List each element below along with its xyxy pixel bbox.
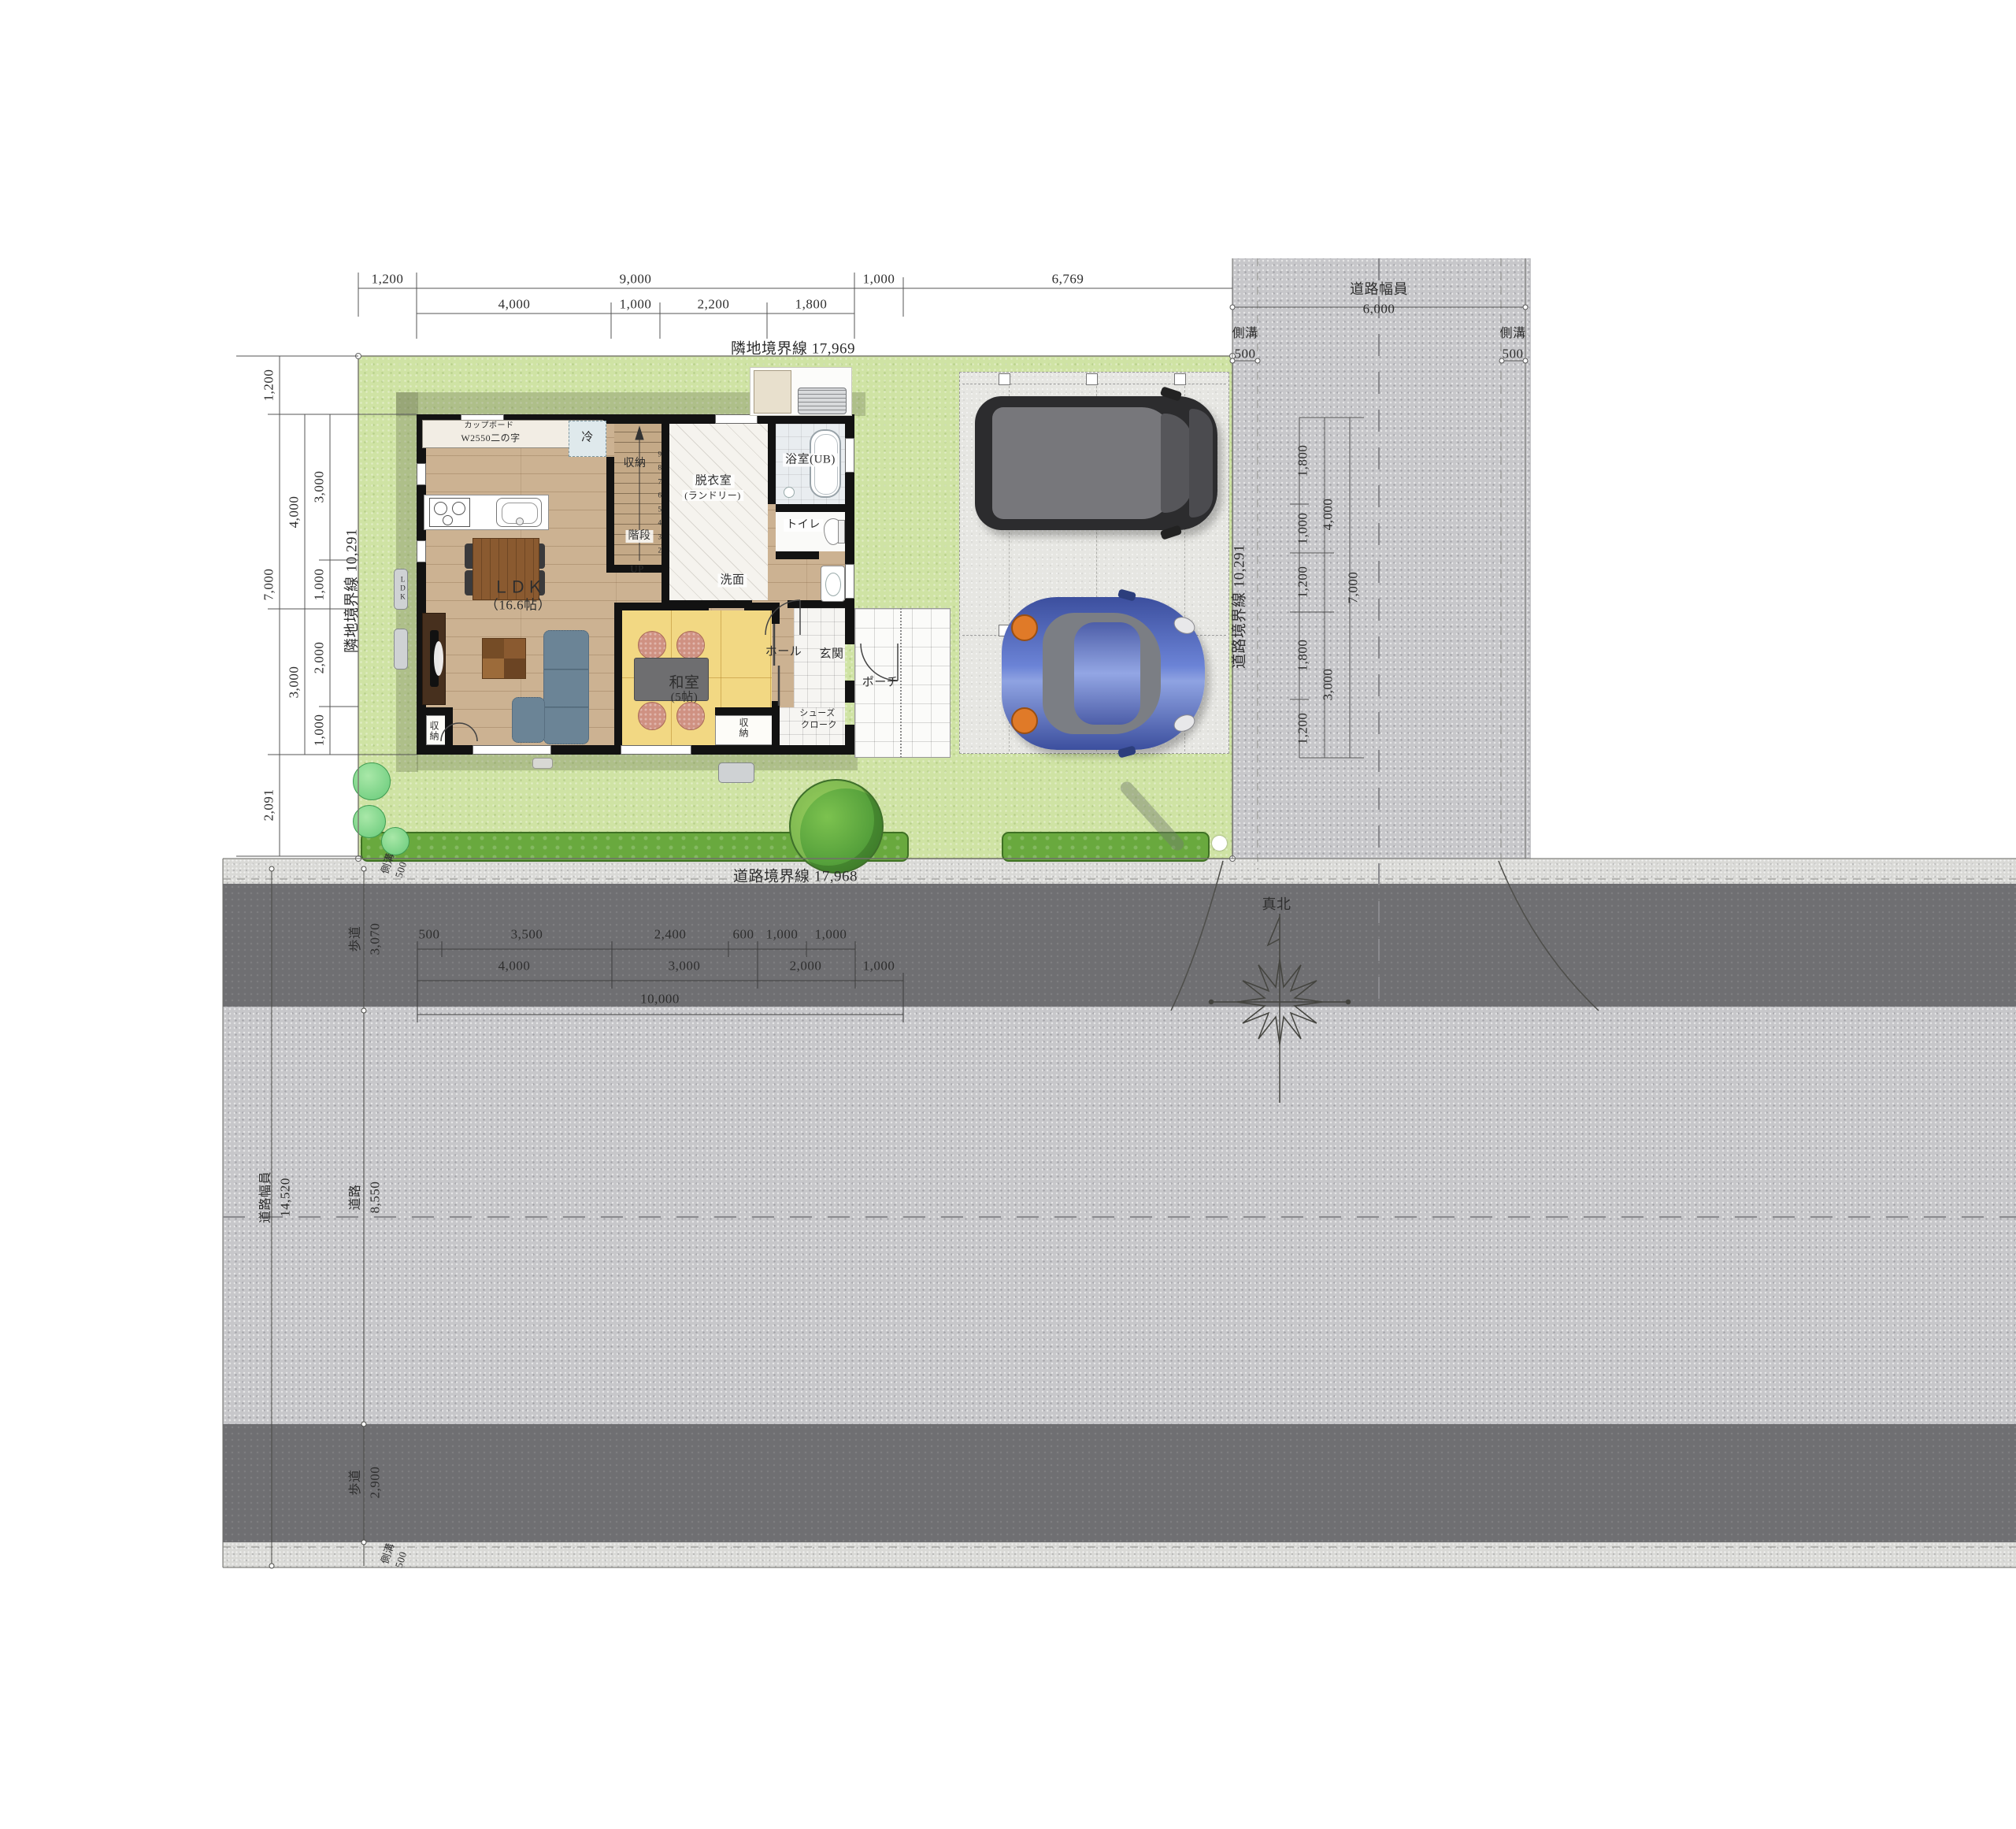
bottom-dims-label: 10,000	[640, 992, 680, 1006]
wall-closet-ldk-top	[426, 707, 453, 715]
left-dims-label: 7,000	[262, 569, 276, 601]
road-labels-label: 歩道	[350, 926, 362, 952]
left-dims-label: 2,000	[313, 642, 326, 674]
ac-outdoor-unit-washitsu	[718, 762, 754, 783]
window-wash-right	[845, 564, 854, 599]
right-dims-label: 1,800	[1296, 640, 1310, 672]
boundary-labels-label: 隣地境界線 10,291	[345, 529, 360, 653]
beetle-headlight-bottom	[1011, 707, 1038, 734]
road-gutter-top	[223, 859, 2016, 884]
water-heater-tank	[754, 370, 791, 414]
road-labels-label: 6,000	[1363, 302, 1395, 316]
top-dims-label: 4,000	[498, 298, 531, 311]
fixtures-label: 3	[658, 534, 662, 541]
fixtures-label: 収納	[739, 718, 748, 738]
fixtures-label: LDK	[399, 576, 406, 602]
tree-large	[789, 779, 884, 874]
burner	[452, 502, 465, 515]
suv-roof	[992, 407, 1173, 519]
toilet-tank	[838, 520, 845, 544]
fixtures-label: 収納	[429, 721, 439, 741]
top-dims-label: 1,800	[795, 298, 828, 311]
rooms-label: ポーチ	[862, 677, 899, 689]
road-labels-label: 側溝	[1499, 328, 1525, 340]
window-ldk-bottom	[472, 745, 551, 755]
zabuton-cushion	[676, 631, 705, 659]
zabuton-cushion	[676, 702, 705, 730]
left-dims-label: 1,200	[262, 369, 276, 402]
heatpump-unit	[798, 388, 847, 414]
top-dims-label: 6,769	[1052, 273, 1084, 286]
fixtures-label: 冷	[581, 432, 594, 444]
washbasin	[821, 566, 845, 602]
suv-hood	[1189, 409, 1213, 518]
wall-ldk-dressing	[661, 424, 669, 608]
joint-square	[999, 373, 1010, 385]
wall-right-entry3	[845, 725, 854, 745]
rooms-label: ＬＤＫ	[493, 580, 544, 596]
road-labels-label: 歩道	[350, 1469, 362, 1495]
fixtures-label: 2	[658, 547, 662, 555]
joint-square	[1174, 373, 1186, 385]
road-gutter-bottom	[223, 1542, 2016, 1567]
rooms-label: 玄関	[819, 649, 843, 661]
left-dims-label: 1,000	[313, 714, 326, 747]
rooms-label: 和室	[669, 676, 699, 691]
left-dims-label: 3,000	[287, 666, 301, 699]
top-dims-label: 9,000	[620, 273, 652, 286]
fixtures-label: 6	[658, 492, 662, 499]
wall-stair-left	[606, 457, 614, 572]
boundary-labels-label: 道路境界線 10,291	[1232, 544, 1247, 669]
right-dims-label: 4,000	[1321, 499, 1335, 531]
wall-washitsu-right1	[772, 608, 780, 624]
rooms-label: 浴室(UB)	[783, 454, 838, 467]
road-sidewalk-bottom	[223, 1424, 2016, 1542]
bottom-dims-label: 600	[733, 928, 754, 941]
rooms-label: クローク	[801, 722, 837, 730]
car-beetle	[1002, 597, 1205, 750]
bottom-dims-label: 1,000	[863, 959, 895, 973]
bottom-dims-label: 500	[419, 928, 440, 941]
zabuton-cushion	[638, 702, 666, 730]
right-dims-label: 1,800	[1296, 445, 1310, 477]
wall-closet-top	[715, 707, 776, 715]
bottom-dims-label: 1,000	[815, 928, 847, 941]
boundary-labels-label: 隣地境界線 17,969	[731, 342, 855, 357]
cooktop	[429, 498, 470, 527]
road-labels-label: 500	[1503, 347, 1524, 361]
window-left-1	[417, 463, 426, 485]
left-dims-label: 2,091	[262, 789, 276, 822]
bottom-dims-label: 3,000	[669, 959, 701, 973]
road-labels-label: 真北	[1262, 897, 1291, 911]
fixtures-label: 7	[658, 479, 662, 486]
wall-bath-left	[768, 424, 776, 504]
tree-small	[353, 805, 386, 838]
staircase	[614, 424, 661, 565]
road-labels-label: 3,070	[369, 923, 382, 955]
rooms-label: シューズ	[799, 710, 835, 718]
rooms-label: トイレ	[784, 519, 823, 532]
road-labels-label: 8,550	[369, 1182, 382, 1214]
beetle-roof	[1074, 622, 1140, 725]
wall-toilet-bottom	[776, 551, 819, 559]
road-labels-label: 側溝	[1232, 328, 1258, 340]
rug	[482, 638, 526, 679]
tv	[430, 630, 439, 687]
rooms-label: ホール	[765, 647, 802, 659]
ac-outdoor-unit-2	[394, 629, 408, 670]
wall-washitsu-left	[614, 608, 622, 745]
faucet	[516, 518, 524, 525]
fixtures-label: 5	[658, 506, 662, 514]
road-labels-label: 道路	[350, 1184, 362, 1210]
rooms-label: 脱衣室	[693, 475, 735, 488]
sofa-chaise	[512, 697, 545, 743]
fixtures-label: カップボード	[465, 422, 514, 430]
fixtures-label: 9	[658, 451, 662, 458]
window-washitsu-bottom	[621, 745, 691, 755]
fixtures-label: 階段	[626, 530, 654, 543]
wall-right-entry1	[845, 608, 854, 644]
house-shadow-bottom	[417, 755, 858, 770]
beetle-headlight-top	[1011, 614, 1038, 641]
suv-windshield	[1161, 414, 1192, 513]
top-dims-label: 1,000	[863, 273, 895, 286]
sofa-main	[543, 630, 589, 744]
left-dims-label: 4,000	[287, 496, 301, 529]
rooms-label: （16.6帖）	[485, 599, 551, 612]
tv-screen-glare	[434, 641, 443, 676]
car-suv	[975, 396, 1217, 530]
road-labels-label: 道路幅員	[1350, 282, 1408, 296]
fixtures-label: 4	[658, 520, 662, 527]
right-dims-label: 1,200	[1296, 713, 1310, 745]
joint-square	[1086, 373, 1098, 385]
top-dims-label: 1,000	[620, 298, 652, 311]
washbasin-bowl	[825, 573, 841, 596]
boundary-labels-label: 道路境界線 17,968	[733, 870, 858, 885]
road-labels-label: 500	[1235, 347, 1256, 361]
kitchen-sink	[496, 498, 542, 527]
window-bath-right	[845, 438, 854, 473]
window-left-2	[417, 540, 426, 562]
porch-eave-line	[900, 608, 902, 758]
wall-washitsu-top1	[614, 603, 709, 610]
rooms-label: (ランドリー)	[682, 490, 743, 501]
top-dims-label: 1,200	[372, 273, 404, 286]
zabuton-cushion	[638, 631, 666, 659]
left-dims-label: 1,000	[313, 569, 326, 601]
left-dims-label: 3,000	[313, 471, 326, 503]
manhole	[1212, 836, 1227, 851]
tree-small	[353, 762, 391, 800]
fixtures-label: W2550二の字	[461, 433, 520, 443]
road-vertical	[1232, 258, 1531, 859]
site-plan-canvas: 1,2009,0001,0006,7694,0001,0002,2001,800…	[0, 0, 2016, 1829]
rooms-label: (5帖)	[671, 692, 699, 704]
road-labels-label: 2,900	[369, 1467, 382, 1499]
shower-drain	[784, 487, 795, 498]
road-labels-label: 14,520	[279, 1178, 292, 1217]
rooms-label: 洗面	[717, 574, 747, 588]
road-labels-label: 道路幅員	[260, 1171, 272, 1223]
road-sidewalk-top	[223, 884, 2016, 1007]
right-dims-label: 1,000	[1296, 513, 1310, 545]
roadway-main	[223, 1007, 2016, 1424]
wall-bath-bottom	[776, 504, 845, 512]
bottom-dims-label: 3,500	[511, 928, 543, 941]
right-dims-label: 7,000	[1347, 572, 1360, 604]
bottom-dims-label: 1,000	[766, 928, 799, 941]
fixtures-label: UP	[630, 564, 644, 574]
right-dims-label: 3,000	[1321, 669, 1335, 701]
bottom-dims-label: 2,400	[654, 928, 687, 941]
fixtures-label: 収納	[624, 458, 647, 469]
top-dims-label: 2,200	[698, 298, 730, 311]
right-dims-label: 1,200	[1296, 566, 1310, 599]
fixtures-label: 8	[658, 465, 662, 472]
wall-right-entry2	[845, 681, 854, 703]
step-stone	[532, 758, 553, 769]
burner	[443, 515, 453, 525]
bottom-dims-label: 2,000	[790, 959, 822, 973]
bottom-dims-label: 4,000	[498, 959, 531, 973]
burner	[434, 502, 447, 515]
